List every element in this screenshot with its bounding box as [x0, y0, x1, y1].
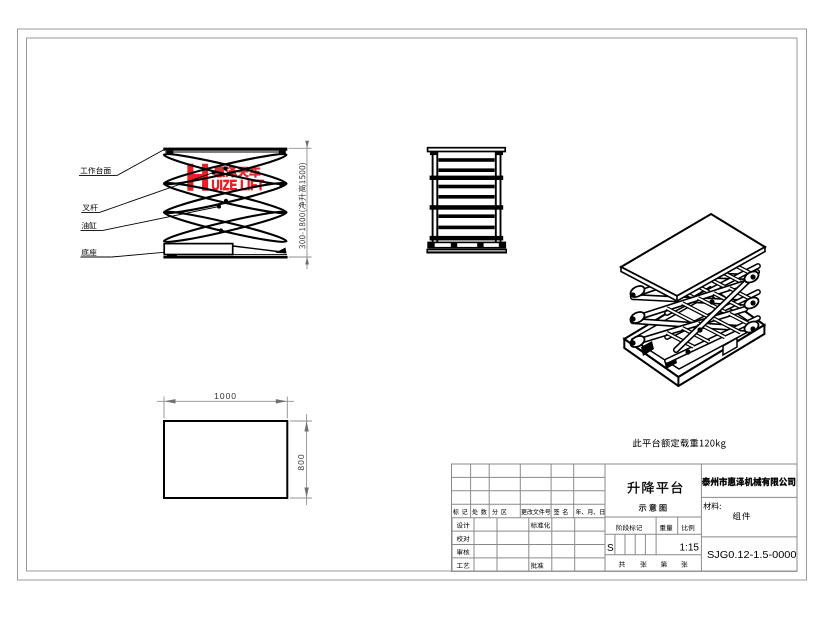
svg-text:1:15: 1:15: [680, 543, 700, 554]
svg-text:800: 800: [296, 453, 306, 470]
svg-text:1000: 1000: [214, 391, 237, 401]
svg-text:S: S: [607, 543, 614, 554]
svg-text:SJG0.12-1.5-0000: SJG0.12-1.5-0000: [707, 549, 797, 561]
